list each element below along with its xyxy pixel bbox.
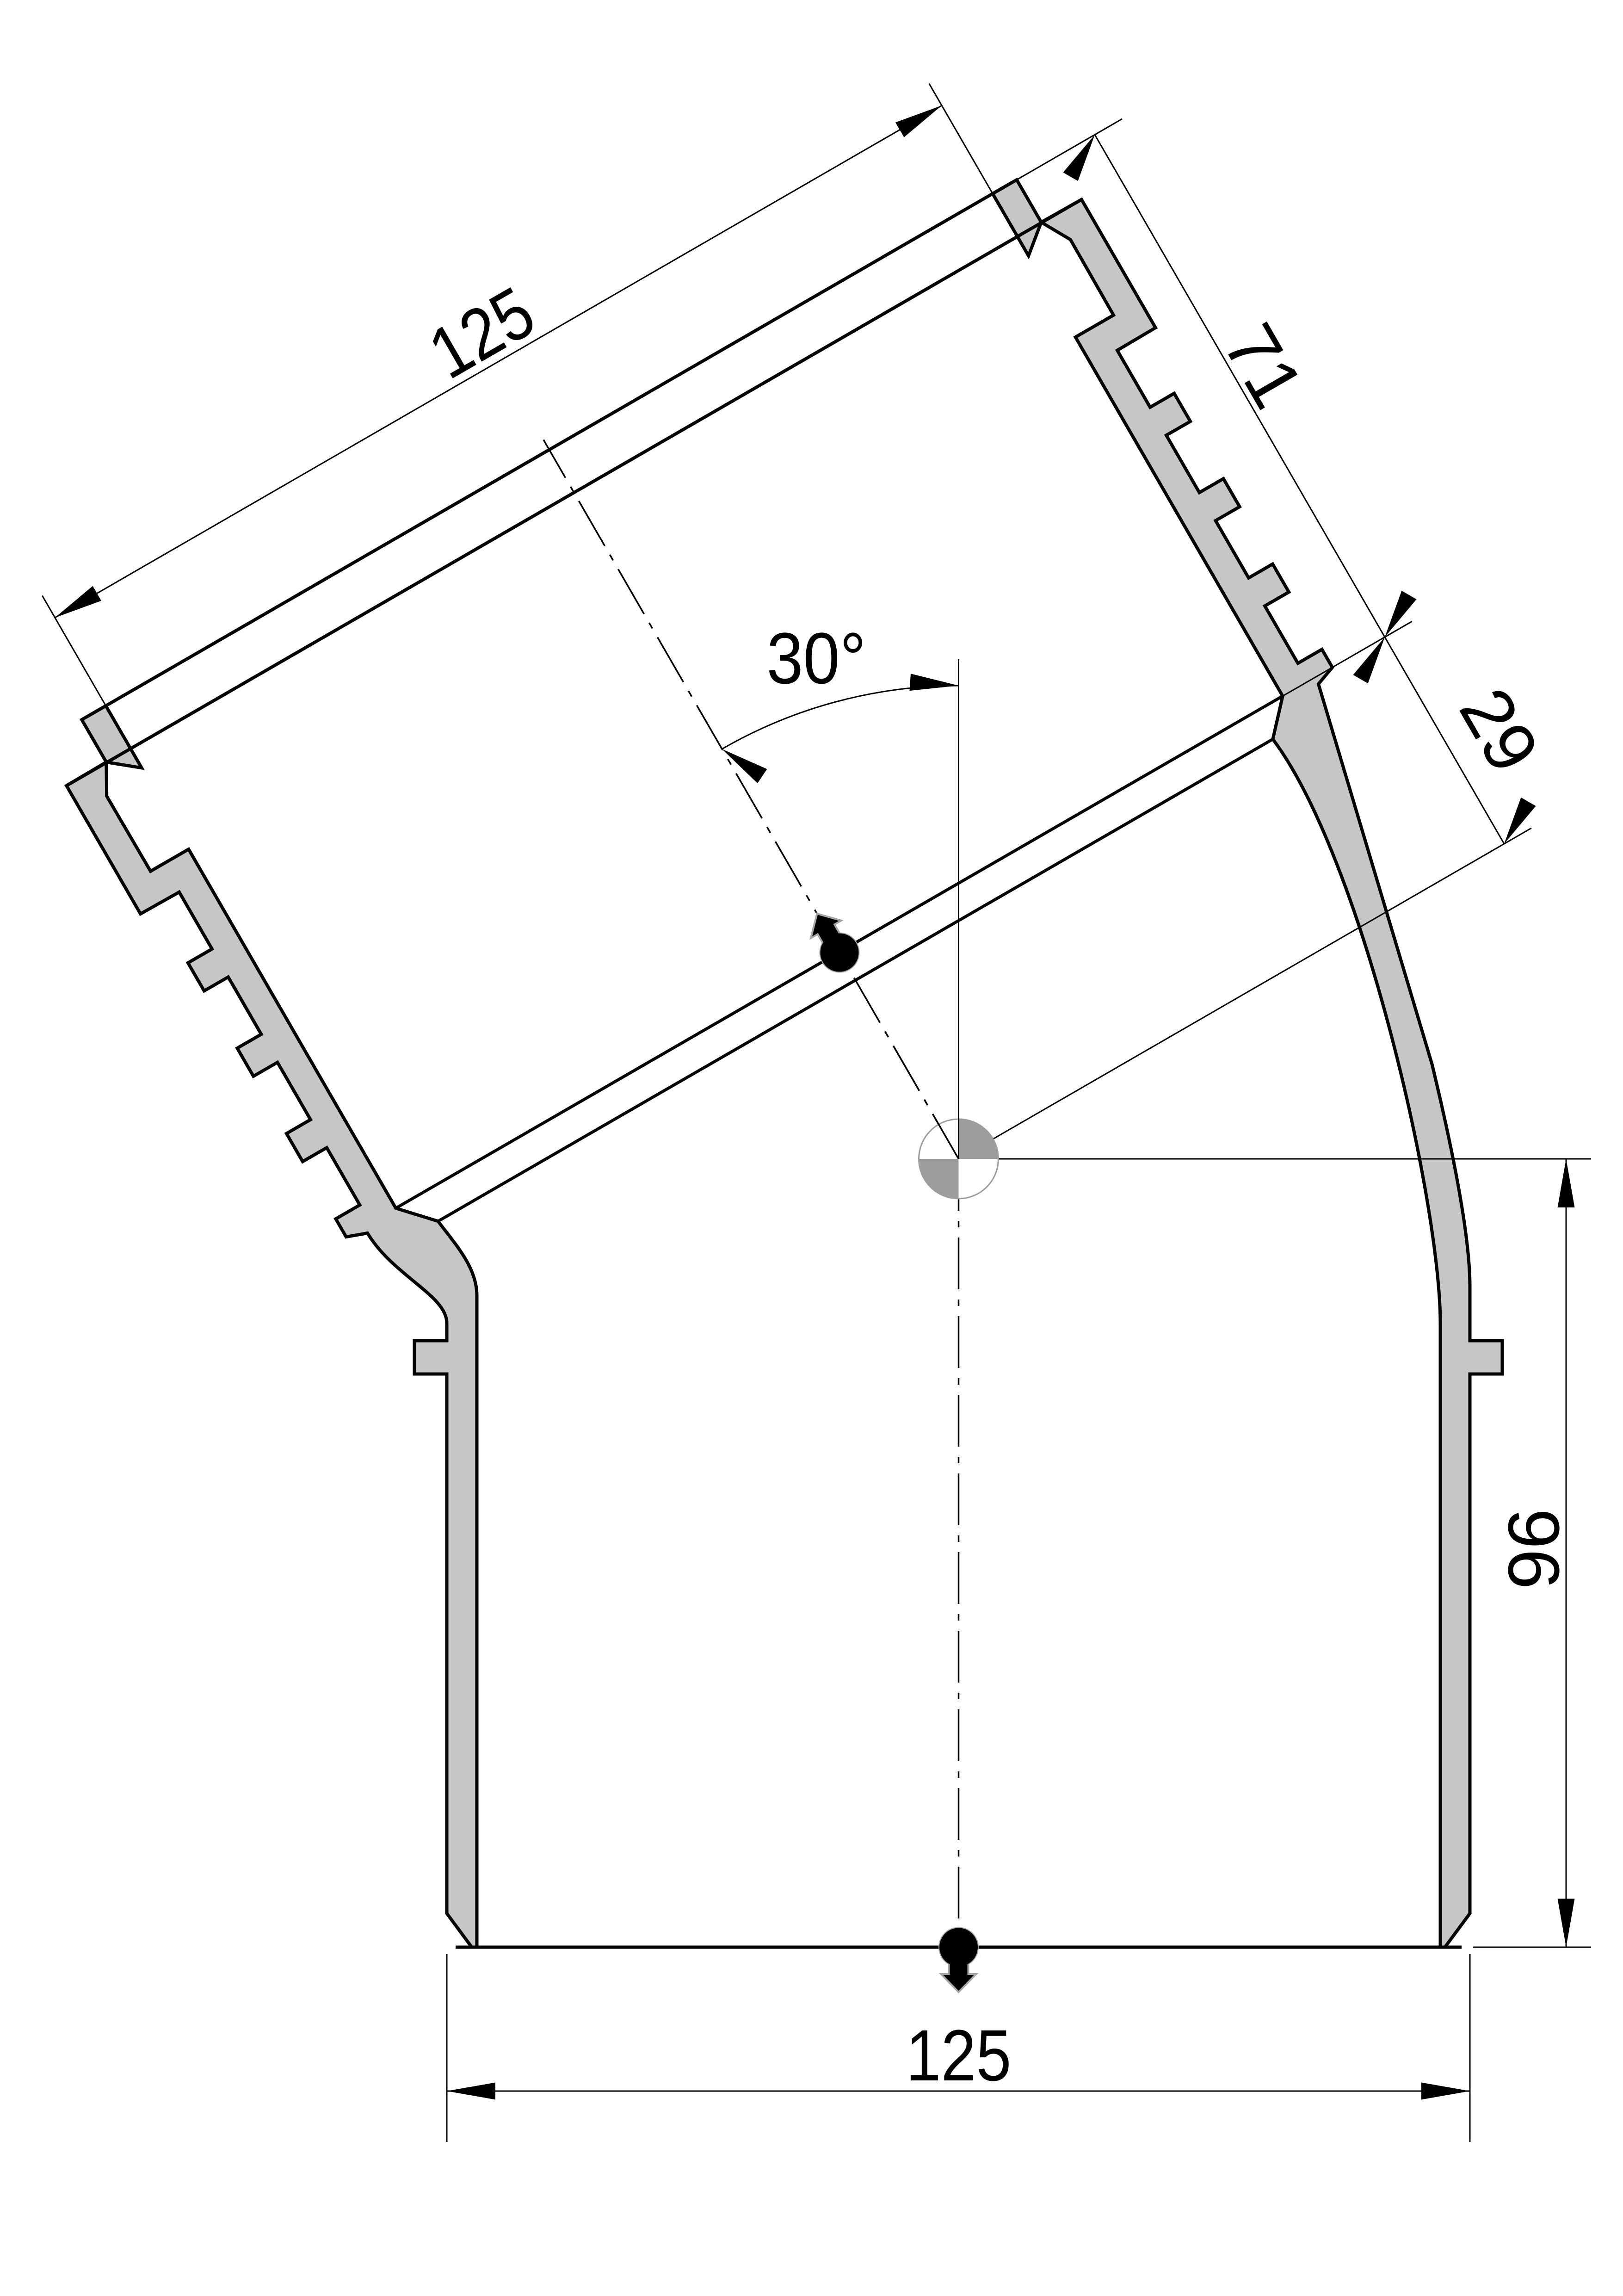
- svg-text:125: 125: [906, 2015, 1012, 2096]
- svg-text:30°: 30°: [767, 618, 866, 699]
- svg-text:96: 96: [1493, 1509, 1574, 1590]
